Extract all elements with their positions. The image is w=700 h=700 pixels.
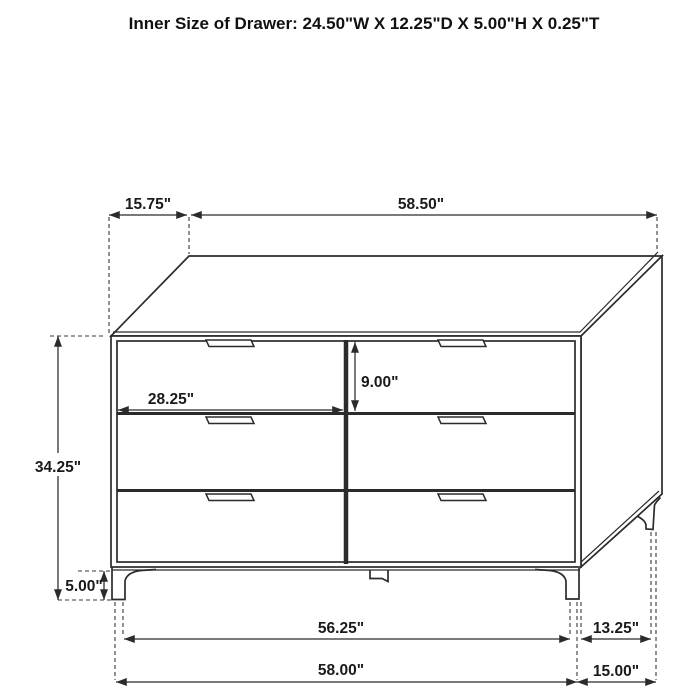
front-right-leg	[535, 568, 579, 599]
dim-label-drawer-height: 9.00"	[361, 374, 399, 391]
dim-label-overall-depth: 15.00"	[593, 663, 639, 680]
diagram-title: Inner Size of Drawer: 24.50"W X 12.25"D …	[129, 14, 600, 33]
drawer-handle-middle-right	[438, 417, 486, 424]
drawer-handle-middle-left	[206, 417, 254, 424]
drawer-handle-bottom-right	[438, 494, 486, 501]
dim-label-overall-width: 58.00"	[318, 662, 364, 679]
front-left-leg	[112, 567, 156, 600]
dimension-diagram-page: Inner Size of Drawer: 24.50"W X 12.25"D …	[0, 0, 700, 700]
dresser-illustration	[111, 252, 662, 600]
dresser-top-surface	[111, 256, 662, 336]
center-leg	[370, 570, 388, 582]
dim-label-drawer-width: 28.25"	[148, 391, 194, 408]
dim-label-base-inner-width: 56.25"	[318, 620, 364, 637]
dresser-dimension-diagram: Inner Size of Drawer: 24.50"W X 12.25"D …	[0, 0, 700, 700]
dim-label-body-height: 34.25"	[35, 459, 81, 476]
drawer-handle-top-right	[438, 340, 486, 347]
dim-label-side-leg-span: 13.25"	[593, 620, 639, 637]
dim-label-top-width: 58.50"	[398, 196, 444, 213]
drawer-handle-bottom-left	[206, 494, 254, 501]
drawer-handle-top-left	[206, 340, 254, 347]
dim-label-top-depth-offset: 15.75"	[125, 196, 171, 213]
dim-label-leg-height: 5.00"	[65, 578, 103, 595]
